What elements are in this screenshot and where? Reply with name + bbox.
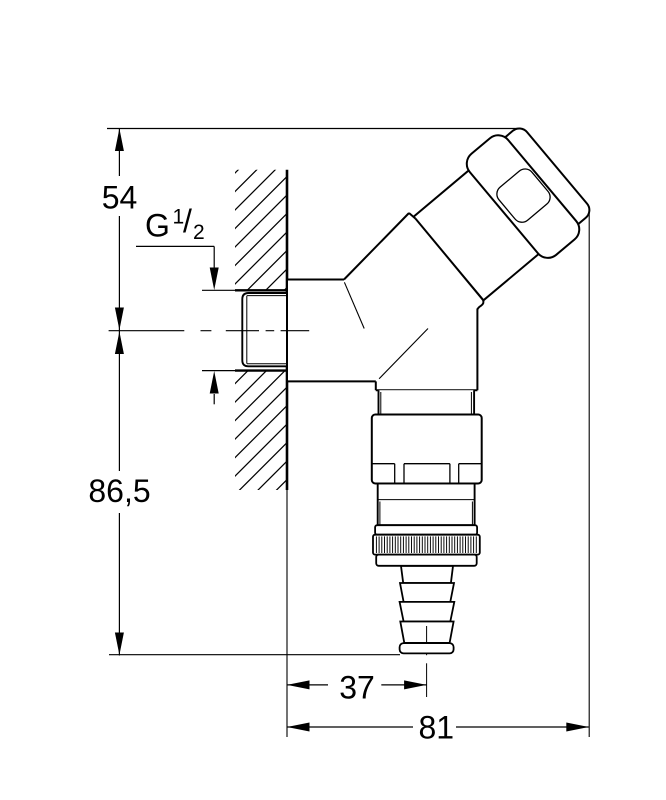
svg-text:/: / [183, 203, 192, 239]
svg-text:54: 54 [102, 180, 138, 216]
svg-text:G: G [145, 207, 170, 243]
svg-text:86,5: 86,5 [88, 473, 150, 509]
svg-text:81: 81 [419, 709, 455, 745]
svg-text:2: 2 [193, 221, 205, 244]
svg-text:37: 37 [339, 670, 375, 706]
